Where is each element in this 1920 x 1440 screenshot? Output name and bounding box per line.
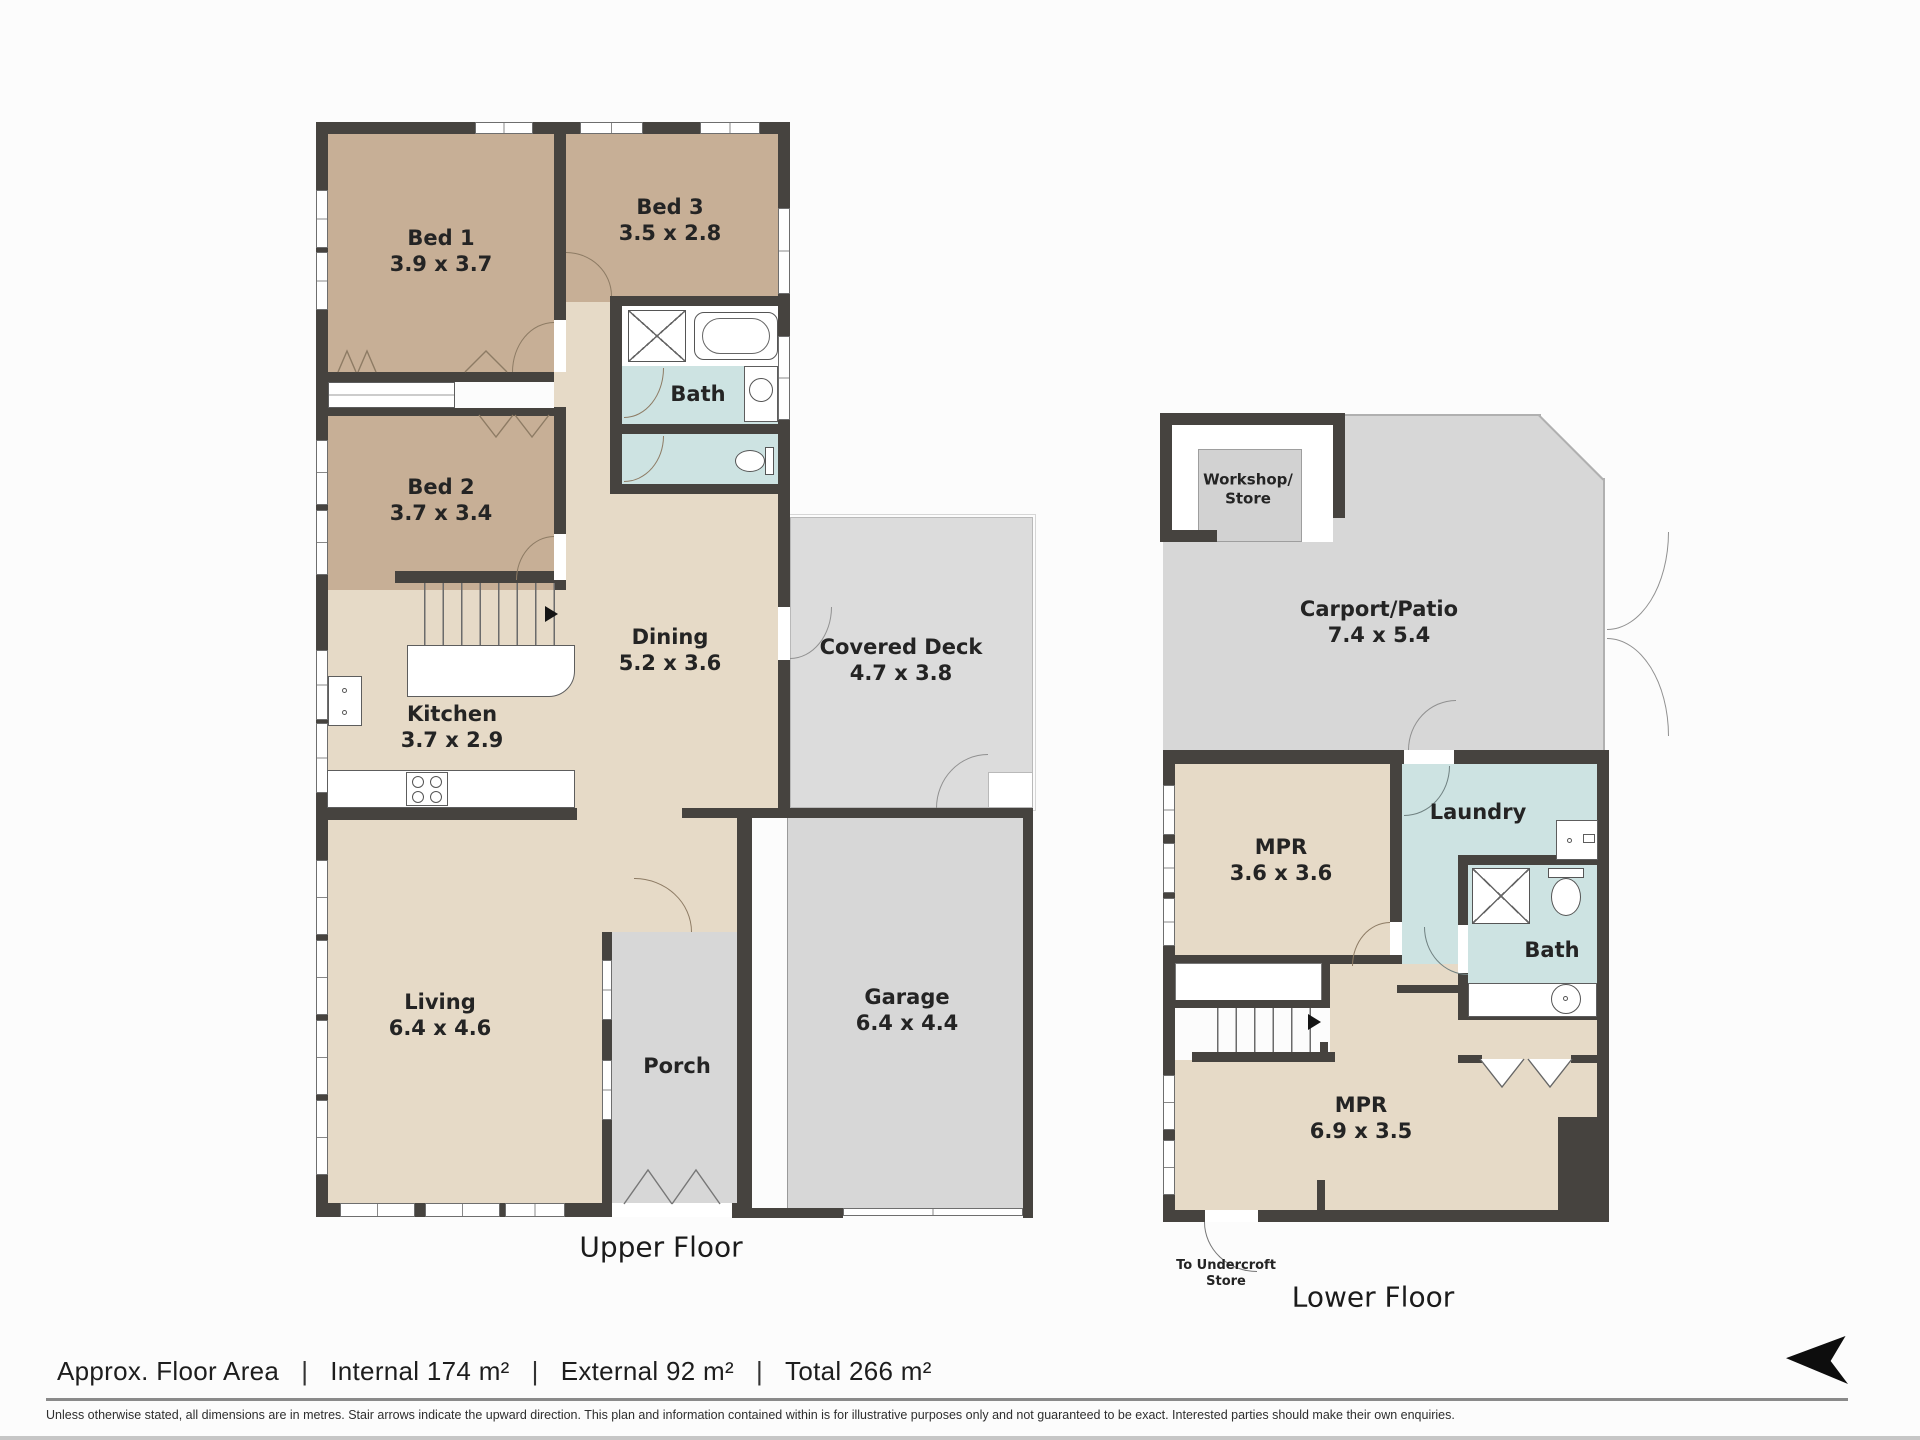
toilet-tank	[765, 447, 774, 475]
window	[505, 1203, 565, 1217]
undercroft-label: To Undercroft Store	[1176, 1258, 1276, 1291]
stair-direction-arrow-icon	[1308, 1014, 1321, 1030]
wall	[1333, 413, 1345, 518]
room-label-carport: Carport/Patio 7.4 x 5.4	[1300, 596, 1458, 649]
room-label-porch: Porch	[643, 1053, 711, 1079]
floor-area-summary: Approx. Floor Area | Internal 174 m² | E…	[57, 1356, 932, 1387]
total-area: Total 266 m²	[785, 1356, 932, 1387]
burner-icon	[430, 791, 442, 803]
room-label-laundry: Laundry	[1430, 799, 1527, 825]
wall	[1023, 1208, 1033, 1218]
disclaimer-text: Unless otherwise stated, all dimensions …	[46, 1408, 1455, 1422]
bifold-door-icon	[464, 350, 508, 372]
burner-icon	[412, 776, 424, 788]
room-label-bed2: Bed 2 3.7 x 3.4	[390, 474, 493, 527]
sink-drain	[342, 710, 347, 715]
wall	[1317, 1180, 1325, 1210]
window	[316, 1100, 328, 1175]
room-label-garage: Garage 6.4 x 4.4	[856, 984, 959, 1037]
room-name: Bed 2	[390, 474, 493, 500]
room-name: Kitchen	[401, 701, 504, 727]
sink-drain	[342, 688, 347, 693]
stair-direction-arrow-icon	[545, 606, 558, 622]
room-label-bath-upper: Bath	[670, 381, 725, 407]
room-name: MPR	[1310, 1092, 1413, 1118]
garage-door	[843, 1208, 1023, 1216]
separator: |	[532, 1356, 539, 1387]
bifold-door-icon	[337, 350, 377, 372]
sink-drain	[1563, 996, 1568, 1001]
room-name: Porch	[643, 1053, 711, 1079]
porch-door-icon	[622, 1168, 722, 1204]
room-name: Garage	[856, 984, 959, 1010]
stove-cooktop	[406, 772, 448, 806]
window	[316, 510, 328, 575]
room-name: Bath	[670, 381, 725, 407]
floorplan-page: Bed 1 3.9 x 3.7 Bed 3 3.5 x 2.8 Bed 2 3.…	[0, 0, 1920, 1440]
wall	[732, 1208, 843, 1218]
area-label: Approx. Floor Area	[57, 1356, 279, 1387]
kitchen-bench	[327, 770, 575, 808]
toilet-icon	[735, 450, 765, 472]
door-opening	[554, 320, 566, 372]
room-dims: 3.7 x 2.9	[401, 727, 504, 753]
wall	[1192, 1052, 1335, 1062]
tub-drain	[1567, 838, 1572, 843]
room-dims: 7.4 x 5.4	[1300, 622, 1458, 648]
window	[778, 336, 790, 420]
door-opening	[778, 607, 790, 660]
vestibule-floor	[1330, 964, 1458, 1060]
window	[602, 1060, 612, 1120]
wall	[1597, 764, 1609, 1222]
footer-divider	[46, 1398, 1848, 1401]
wall	[778, 517, 790, 607]
window	[1163, 1140, 1175, 1195]
window	[1163, 843, 1175, 893]
room-label-mpr2: MPR 6.9 x 3.5	[1310, 1092, 1413, 1145]
wall	[778, 122, 790, 517]
wall	[1397, 985, 1470, 993]
wall	[622, 484, 790, 494]
bed1-closet	[328, 382, 455, 408]
room-label-mpr1: MPR 3.6 x 3.6	[1230, 834, 1333, 887]
window	[1163, 785, 1175, 835]
window	[316, 1020, 328, 1095]
shower-icon	[1472, 868, 1530, 924]
window	[316, 650, 328, 720]
room-name: Laundry	[1430, 799, 1527, 825]
room-name: Bed 1	[390, 225, 493, 251]
room-dims: 5.2 x 3.6	[619, 650, 722, 676]
room-label-workshop: Workshop/ Store	[1203, 470, 1293, 508]
window	[425, 1203, 500, 1217]
staircase-down	[1200, 1008, 1323, 1052]
room-dims: 3.5 x 2.8	[619, 220, 722, 246]
double-door-arc	[1607, 638, 1669, 736]
separator: |	[756, 1356, 763, 1387]
wall	[610, 296, 622, 494]
window	[340, 1203, 415, 1217]
wall	[1322, 963, 1330, 1008]
undercroft-door-opening	[1205, 1210, 1258, 1222]
burner-icon	[412, 791, 424, 803]
wall	[1320, 1042, 1328, 1062]
external-area: External 92 m²	[561, 1356, 734, 1387]
window	[316, 440, 328, 505]
carport-outline	[1603, 478, 1605, 752]
room-dims: 6.9 x 3.5	[1310, 1118, 1413, 1144]
kitchen-sink-counter	[328, 676, 362, 726]
bifold-door-icon	[478, 414, 550, 438]
room-label-bed1: Bed 1 3.9 x 3.7	[390, 225, 493, 278]
bottom-edge-strip	[0, 1436, 1920, 1440]
wall	[682, 808, 1023, 818]
room-name: Workshop/	[1203, 470, 1293, 489]
room-name: Carport/Patio	[1300, 596, 1458, 622]
wall	[554, 407, 566, 534]
wall	[554, 134, 566, 320]
room-name: Bed 3	[619, 194, 722, 220]
room-label-bath-lower: Bath	[1524, 937, 1579, 963]
separator: |	[301, 1356, 308, 1387]
below-bath-floor	[1458, 1020, 1609, 1060]
room-dims: 6.4 x 4.6	[389, 1015, 492, 1041]
lower-floor-title: Lower Floor	[1292, 1281, 1454, 1314]
wall	[1023, 808, 1033, 1218]
room-name: Covered Deck	[820, 634, 983, 660]
stair-closet	[1175, 963, 1322, 1002]
undercroft-line2: Store	[1176, 1274, 1276, 1290]
room-dims: 4.7 x 3.8	[820, 660, 983, 686]
room-name: MPR	[1230, 834, 1333, 860]
wall	[1390, 764, 1402, 922]
wall	[1160, 413, 1345, 425]
wall	[1571, 1055, 1609, 1063]
room-dims: 3.7 x 3.4	[390, 500, 493, 526]
room-name: Store	[1203, 489, 1293, 508]
room-dims: 3.6 x 3.6	[1230, 860, 1333, 886]
toilet-tank	[1548, 868, 1584, 878]
wall	[1175, 1000, 1330, 1008]
room-dims: 6.4 x 4.4	[856, 1010, 959, 1036]
internal-area: Internal 174 m²	[330, 1356, 509, 1387]
wall	[1160, 530, 1217, 542]
room-name: Living	[389, 989, 492, 1015]
window	[580, 122, 643, 134]
window	[778, 208, 790, 294]
double-door-icon	[1478, 1058, 1574, 1088]
window	[700, 122, 760, 134]
room-label-kitchen: Kitchen 3.7 x 2.9	[401, 701, 504, 754]
upper-floor-title: Upper Floor	[579, 1231, 742, 1264]
room-label-covered-deck: Covered Deck 4.7 x 3.8	[820, 634, 983, 687]
wall	[328, 372, 554, 382]
window	[316, 940, 328, 1015]
burner-icon	[430, 776, 442, 788]
window	[1163, 898, 1175, 946]
deck-step-notch	[988, 772, 1033, 808]
wall	[1163, 750, 1609, 764]
window	[1163, 1075, 1175, 1130]
window	[316, 190, 328, 248]
basin-icon	[749, 378, 773, 402]
wall	[1160, 413, 1172, 542]
door-opening	[554, 534, 566, 580]
north-arrow-icon	[1786, 1336, 1848, 1384]
window	[316, 252, 328, 310]
window	[602, 960, 612, 1020]
room-dims: 3.9 x 3.7	[390, 251, 493, 277]
shower-icon	[628, 310, 686, 362]
wall	[1175, 955, 1330, 963]
room-name: Bath	[1524, 937, 1579, 963]
wall	[316, 808, 577, 820]
porch-entry-opening	[612, 1203, 732, 1217]
undercroft-line1: To Undercroft	[1176, 1258, 1276, 1274]
understair-store-block	[1558, 1117, 1597, 1210]
wall	[622, 424, 780, 434]
toilet-icon	[1551, 878, 1581, 916]
bathtub-icon	[694, 312, 778, 360]
double-door-arc	[1607, 532, 1669, 630]
room-label-dining: Dining 5.2 x 3.6	[619, 624, 722, 677]
kitchen-island	[407, 645, 575, 697]
tap-plate	[1583, 834, 1595, 843]
room-name: Dining	[619, 624, 722, 650]
wall	[778, 660, 790, 808]
wall	[610, 296, 790, 306]
door-opening	[1404, 750, 1454, 764]
room-label-bed3: Bed 3 3.5 x 2.8	[619, 194, 722, 247]
window	[475, 122, 533, 134]
room-label-living: Living 6.4 x 4.6	[389, 989, 492, 1042]
staircase-up	[407, 583, 560, 645]
wall	[737, 818, 752, 1213]
window	[316, 860, 328, 935]
